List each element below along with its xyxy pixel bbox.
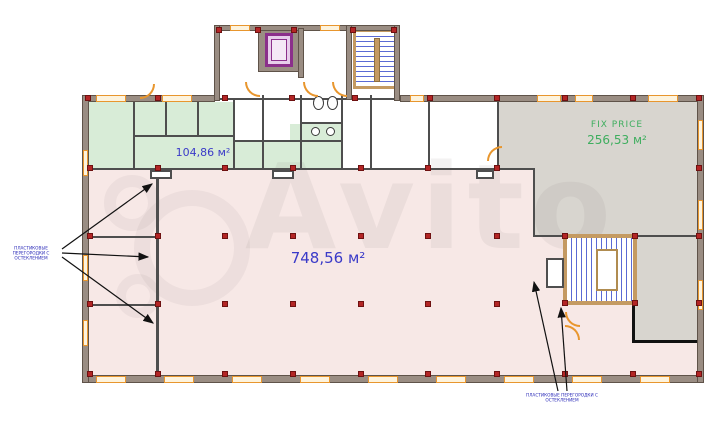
sink-icon [311,127,320,136]
door-swing-icon [487,146,502,161]
column-marker [222,301,228,307]
window-opening [640,376,670,383]
column-marker [222,233,228,239]
wall-pier-stub [272,170,294,179]
open-space-area-label: 748,56 м² [283,249,373,267]
window-opening [575,95,593,102]
window-opening [162,95,192,102]
column-marker [494,95,500,101]
wall-pier-stub [150,170,172,179]
toilet-icon [313,96,324,110]
column-marker [87,165,93,171]
interior-wall-segment [370,95,372,170]
column-marker [255,27,261,33]
column-marker [425,371,431,377]
column-marker [222,95,228,101]
column-marker [87,371,93,377]
exterior-wall-segment [214,25,220,101]
column-marker [155,233,161,239]
window-opening [504,376,534,383]
window-opening [83,320,88,346]
column-marker [494,233,500,239]
interior-wall-segment [165,100,167,136]
staircase-divider [374,38,380,82]
interior-wall-segment [233,140,341,142]
duct-shaft [546,258,564,288]
fix-price-name-label: FIX PRICE [583,120,651,130]
fix-price-fill-3 [635,235,697,342]
column-marker [222,165,228,171]
column-marker [290,301,296,307]
column-marker [630,95,636,101]
green-zone-area-label: 104,86 м² [168,146,238,159]
fix-price-fill-2 [535,170,697,235]
column-marker [85,95,91,101]
column-marker [425,301,431,307]
column-marker [632,233,638,239]
fix-price-area-label: 256,53 м² [581,133,653,147]
annotation-bottom-line2: ОСТЕКЛЕНИЕМ [518,398,606,403]
staircase-top [353,29,397,89]
open-space-fill-3 [633,342,697,377]
elevator-cabin [271,39,287,61]
column-marker [290,165,296,171]
window-opening [83,255,88,281]
column-marker [216,27,222,33]
interior-wall-segment [133,135,233,137]
window-opening [320,25,340,31]
staircase-bottom [563,234,637,305]
column-marker [350,27,356,33]
column-marker [290,371,296,377]
column-marker [562,233,568,239]
window-opening [572,376,602,383]
interior-wall-segment [635,235,700,237]
interior-wall-segment [88,236,156,238]
column-marker [630,371,636,377]
column-marker [290,233,296,239]
window-opening [410,95,424,102]
window-opening [368,376,398,383]
window-opening [96,376,126,383]
column-marker [425,233,431,239]
interior-wall-segment [215,98,400,100]
interior-wall-segment [341,95,343,168]
annotation-left: ПЛАСТИКОВЫЕ ПЕРЕГОРОДКИ С ОСТЕКЛЕНИЕМ [5,246,58,261]
column-marker [494,301,500,307]
exterior-wall-segment [394,25,400,101]
interior-wall-segment [88,304,156,306]
window-opening [96,95,126,102]
interior-wall-segment [533,170,535,237]
column-marker [155,371,161,377]
window-opening [436,376,466,383]
column-marker [352,95,358,101]
annotation-left-line1: ПЛАСТИКОВЫЕ ПЕРЕГОРОДКИ С [5,246,58,256]
column-marker [391,27,397,33]
window-opening [698,120,703,150]
column-marker [289,95,295,101]
column-marker [155,165,161,171]
window-opening [300,376,330,383]
column-marker [494,165,500,171]
green-zone-fill-2 [233,142,341,168]
exterior-wall-segment [298,28,304,78]
column-marker [696,233,702,239]
annotation-left-line2: ОСТЕКЛЕНИЕМ [5,256,58,261]
fix-price-boundary-wall [632,340,700,343]
sink-icon [326,127,335,136]
wall-pier-stub [476,170,494,179]
interior-wall-segment [156,170,159,377]
interior-wall-segment [428,100,430,168]
window-opening [232,376,262,383]
toilet-icon [327,96,338,110]
column-marker [291,27,297,33]
column-marker [425,165,431,171]
annotation-bottom: ПЛАСТИКОВЫЕ ПЕРЕГОРОДКИ С ОСТЕКЛЕНИЕМ [518,393,606,403]
interior-wall-segment [533,235,565,237]
column-marker [562,371,568,377]
interior-wall-segment [133,100,135,168]
column-marker [358,301,364,307]
window-opening [698,200,703,230]
column-marker [696,165,702,171]
column-marker [222,371,228,377]
column-marker [155,95,161,101]
column-marker [696,300,702,306]
interior-wall-segment [300,122,341,124]
column-marker [358,371,364,377]
fix-price-boundary-wall [632,303,635,343]
column-marker [358,233,364,239]
window-opening [537,95,561,102]
window-opening [230,25,250,31]
column-marker [696,371,702,377]
window-opening [648,95,678,102]
interior-wall-segment [262,95,264,168]
staircase-landing [596,249,618,291]
column-marker [87,233,93,239]
column-marker [696,95,702,101]
window-opening [164,376,194,383]
column-marker [427,95,433,101]
column-marker [155,301,161,307]
column-marker [632,300,638,306]
floor-plan: Avito 748,56 м² 104,86 м² FIX PRICE 256,… [0,0,720,423]
interior-wall-segment [300,95,302,168]
interior-wall-segment [197,100,199,136]
window-opening [83,150,88,176]
column-marker [562,95,568,101]
column-marker [562,300,568,306]
column-marker [87,301,93,307]
column-marker [358,165,364,171]
column-marker [494,371,500,377]
